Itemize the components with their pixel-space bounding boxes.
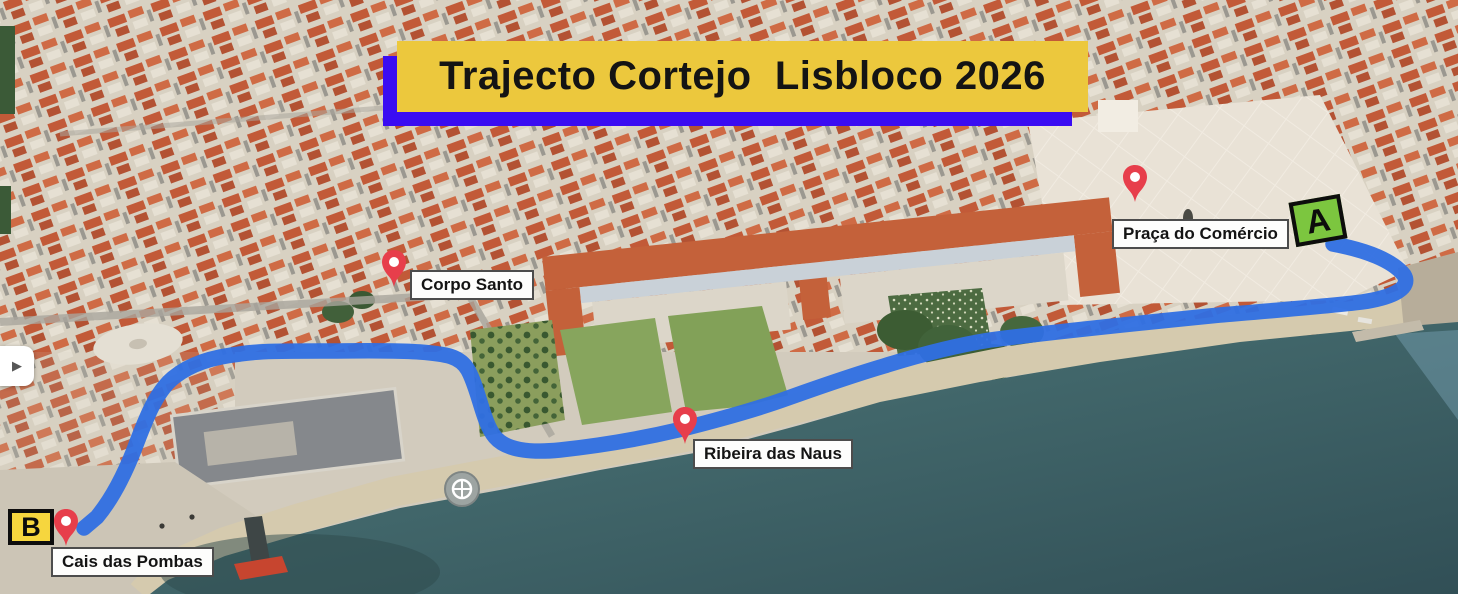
page-title: Trajecto Cortejo Lisbloco 2026 bbox=[439, 54, 1046, 99]
title-banner: Trajecto Cortejo Lisbloco 2026 bbox=[397, 41, 1088, 112]
helipad bbox=[445, 472, 479, 506]
arch bbox=[1098, 100, 1138, 132]
pin-praca-do-comercio-icon bbox=[1121, 164, 1149, 204]
place-label-ribeira-das-naus: Ribeira das Naus bbox=[693, 439, 853, 469]
route-end-marker-b: B bbox=[8, 509, 54, 545]
place-label-praca-do-comercio: Praça do Comércio bbox=[1112, 219, 1289, 249]
place-label-corpo-santo: Corpo Santo bbox=[410, 270, 534, 300]
pin-cais-das-pombas-icon bbox=[52, 508, 80, 548]
chevron-right-icon: ▶ bbox=[12, 358, 22, 374]
marker-b-letter: B bbox=[21, 512, 41, 543]
route-start-marker-a: A bbox=[1288, 194, 1347, 247]
pin-corpo-santo-icon bbox=[380, 249, 408, 289]
map-canvas[interactable]: Trajecto Cortejo Lisbloco 2026 ▶ A B bbox=[0, 0, 1458, 594]
place-label-cais-das-pombas: Cais das Pombas bbox=[51, 547, 214, 577]
marker-a-letter: A bbox=[1303, 200, 1333, 242]
side-panel-expand-button[interactable]: ▶ bbox=[0, 346, 34, 386]
